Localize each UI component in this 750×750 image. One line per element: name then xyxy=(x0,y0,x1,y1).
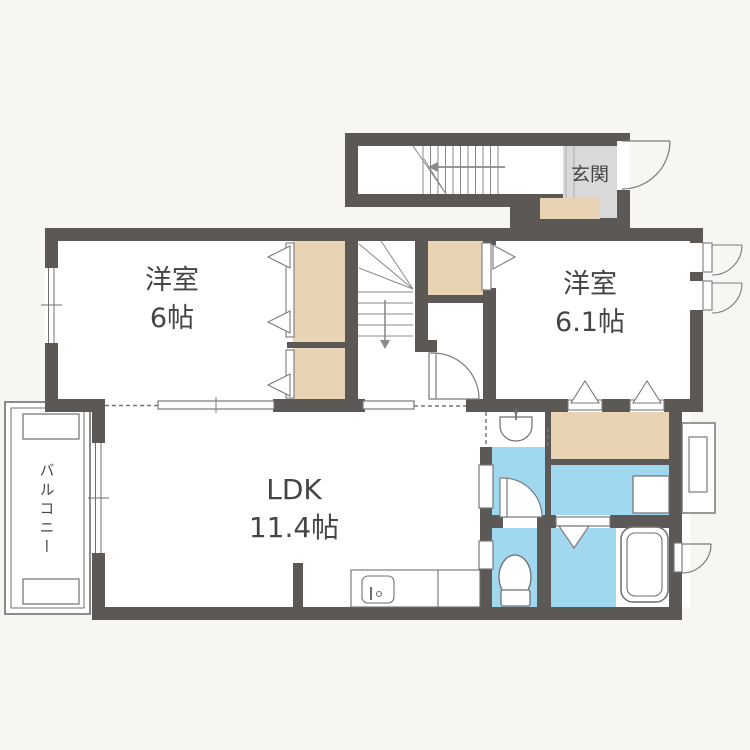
kitchen-counter xyxy=(351,570,480,607)
balcony-fixture-bottom xyxy=(23,579,79,604)
room-label-bedroom-right: 洋室 6.1帖 xyxy=(555,266,625,342)
closet-bedroom-left-lower xyxy=(293,348,345,399)
closet-bedroom-left-upper xyxy=(293,241,345,342)
toilet-icon xyxy=(499,555,531,606)
closet-bedroom-right-bottom xyxy=(551,412,669,459)
room-label-ldk: LDK 11.4帖 xyxy=(249,471,339,547)
kitchen-sink-icon xyxy=(362,576,394,603)
water-heater-unit xyxy=(682,423,715,513)
floor-plan-drawing xyxy=(0,0,750,750)
closet-front-right-side xyxy=(482,243,491,290)
sliding-panel-hall xyxy=(363,401,414,409)
sliding-panel-toilet xyxy=(479,541,493,569)
room-label-entrance: 玄関 xyxy=(571,160,609,187)
floor-plan: 洋室 6帖 洋室 6.1帖 LDK 11.4帖 玄関 バルコニー xyxy=(0,0,750,750)
room-label-bedroom-left: 洋室 6帖 xyxy=(145,262,199,338)
bathtub-icon xyxy=(621,527,668,602)
balcony-fixture-top xyxy=(23,414,79,439)
shoe-cabinet xyxy=(540,198,600,219)
washer-pan-icon xyxy=(633,476,669,513)
room-label-balcony: バルコニー xyxy=(37,463,58,558)
sliding-panel-washroom xyxy=(479,465,493,508)
closet-bedroom-right-side xyxy=(428,241,483,295)
